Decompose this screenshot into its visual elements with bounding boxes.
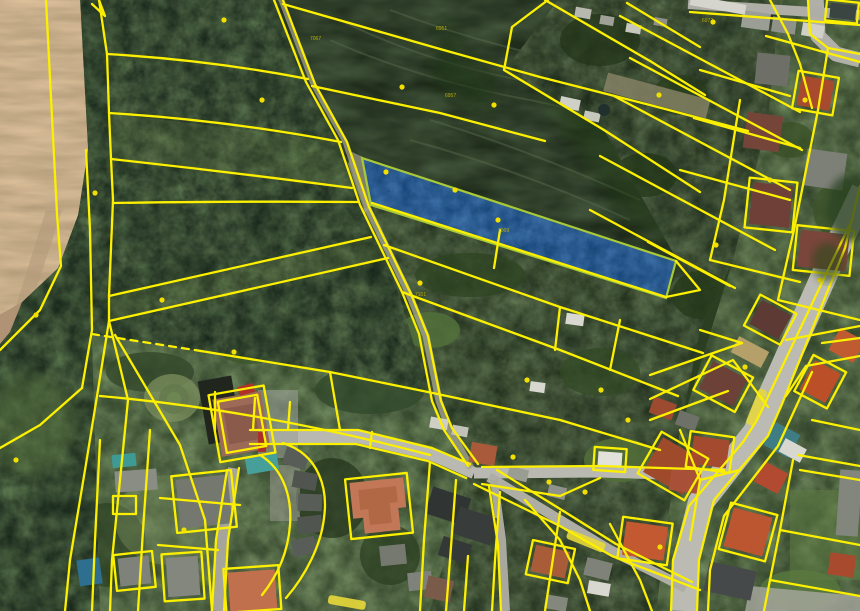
svg-text:7101: 7101 — [415, 292, 426, 298]
svg-text:6951: 6951 — [436, 26, 447, 32]
svg-text:7069: 7069 — [498, 228, 509, 234]
svg-text:6957: 6957 — [445, 93, 456, 99]
svg-text:7067: 7067 — [310, 36, 321, 42]
